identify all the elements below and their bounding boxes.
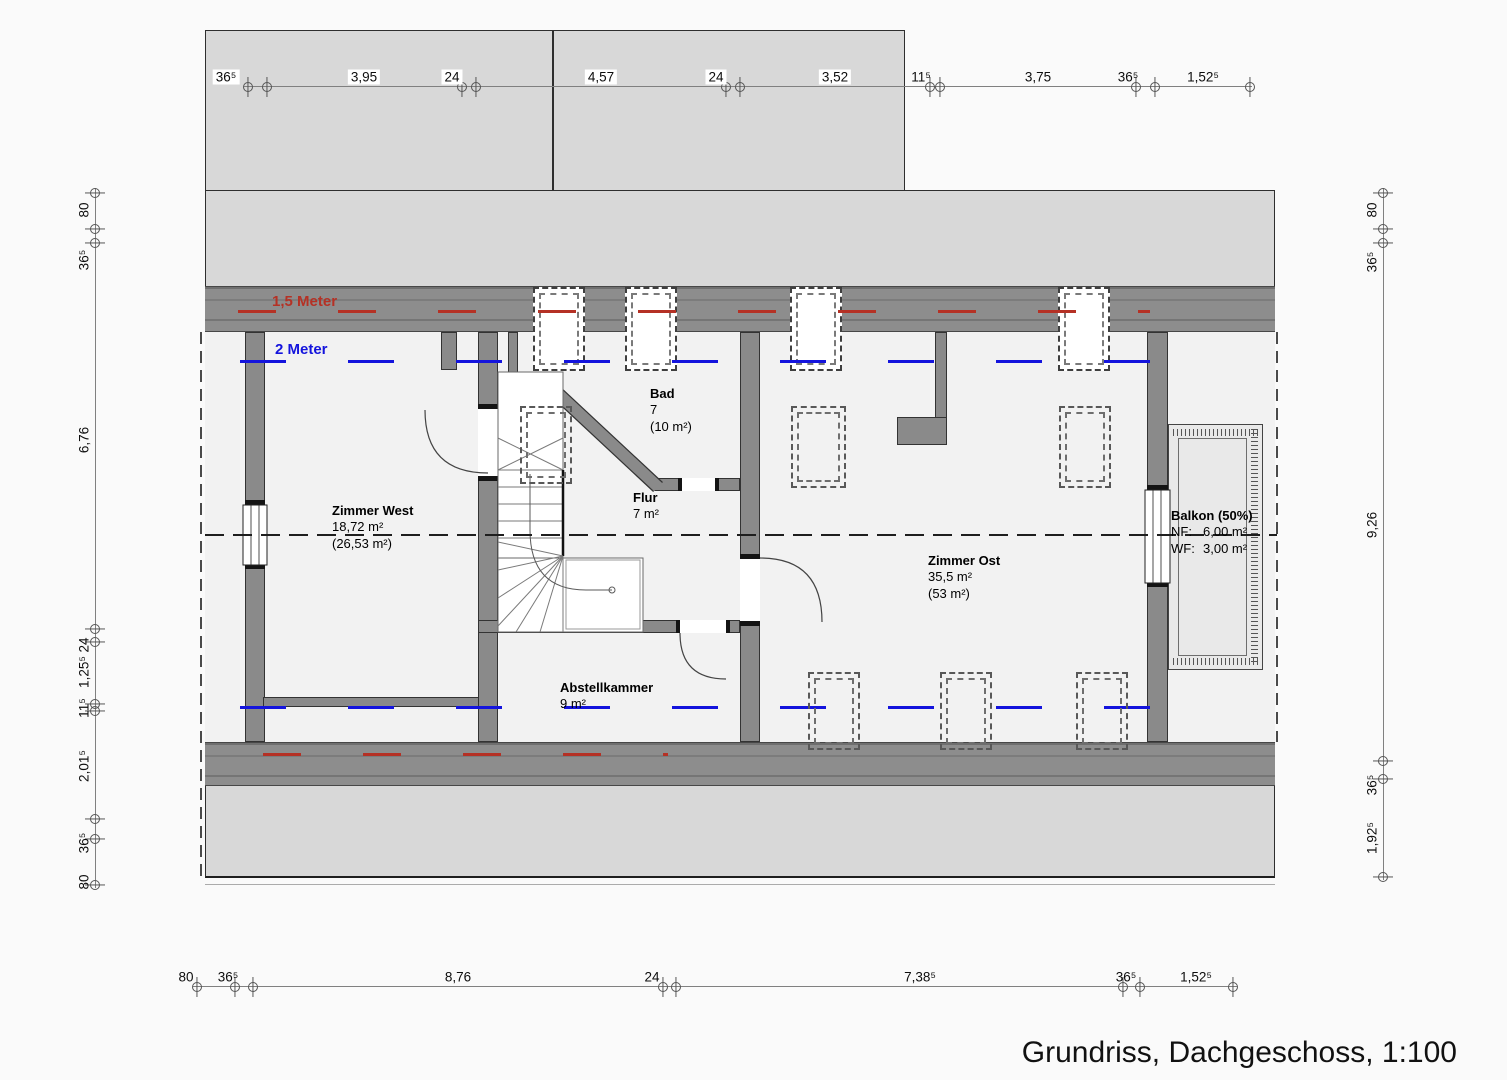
door-cap	[740, 621, 760, 626]
dim-tick	[671, 982, 681, 992]
door-cap	[740, 554, 760, 559]
room-label-abstellkammer: Abstellkammer 9 m²	[560, 680, 653, 713]
window-cap	[1147, 485, 1168, 490]
dim-tick	[90, 624, 100, 634]
eave-dashed-line-west	[200, 332, 202, 878]
dim-label: 36⁵	[77, 830, 92, 857]
nf-value: 6,00 m²	[1203, 524, 1247, 540]
dim-tick	[90, 238, 100, 248]
skylight-inner	[814, 678, 854, 744]
dim-label: 80	[77, 199, 92, 220]
dim-tick	[1150, 82, 1160, 92]
chimney-wall-vertical	[935, 332, 947, 420]
dim-label: 7,38⁵	[901, 970, 939, 985]
dim-line-left	[95, 188, 96, 888]
wall-east-lower	[1147, 583, 1168, 742]
roof-block-west	[205, 30, 553, 191]
room-area-total: (26,53 m²)	[332, 536, 413, 552]
dim-tick	[90, 834, 100, 844]
wf-value: 3,00 m²	[1203, 541, 1247, 557]
dim-line-bottom	[193, 986, 1237, 987]
roof-band-south	[205, 786, 1275, 878]
dormer-window	[625, 287, 677, 371]
dim-label: 36⁵	[1365, 249, 1380, 276]
dormer-window-inner	[631, 293, 671, 365]
drawing-title: Grundriss, Dachgeschoss, 1:100	[1022, 1036, 1457, 1070]
nf-label: NF:	[1171, 524, 1203, 540]
dim-label: 6,76	[77, 424, 92, 456]
dim-label: 11⁵	[77, 695, 92, 721]
room-area-total: (10 m²)	[650, 419, 692, 435]
door-cap	[676, 620, 680, 633]
room-area-total: (53 m²)	[928, 586, 1000, 602]
door-gap-zimmer-ost	[740, 558, 760, 622]
dim-tick	[1378, 224, 1388, 234]
dormer-window-inner	[539, 293, 579, 365]
skylight-inner	[526, 412, 566, 478]
wall-stub-a	[441, 332, 457, 370]
dim-label: 36⁵	[215, 970, 242, 985]
headroom-line-2m-south	[240, 706, 1150, 709]
dim-tick	[90, 224, 100, 234]
headroom-label-2m: 2 Meter	[275, 341, 328, 358]
dim-label: 80	[175, 970, 196, 985]
floor-plan-canvas: 1,5 Meter 2 Meter Zimmer West 18,72 m² (…	[0, 0, 1507, 1080]
window-cap	[245, 564, 265, 569]
headroom-label-1-5m: 1,5 Meter	[272, 293, 337, 310]
wall-bad-south-stub	[717, 478, 740, 491]
balcony-railing-top	[1173, 429, 1258, 436]
wall-stair-west-lower	[478, 477, 498, 742]
room-name: Balkon (50%)	[1171, 508, 1253, 524]
dim-label: 24	[641, 970, 662, 985]
chimney-block	[897, 417, 947, 445]
dim-tick	[90, 814, 100, 824]
room-label-zimmer-west: Zimmer West 18,72 m² (26,53 m²)	[332, 503, 413, 552]
wall-east-upper	[1147, 332, 1168, 490]
dim-label: 9,26	[1365, 509, 1380, 541]
knee-wall-north	[205, 286, 1275, 332]
room-area: 7 m²	[633, 506, 659, 522]
dim-label: 1,25⁵	[77, 653, 92, 691]
room-area: 18,72 m²	[332, 519, 413, 535]
door-cap	[678, 478, 682, 491]
headroom-line-1-5m-north	[238, 310, 1150, 313]
dim-tick	[735, 82, 745, 92]
dim-label: 36⁵	[77, 247, 92, 274]
skylight	[791, 406, 846, 488]
dim-label: 36⁵	[1113, 970, 1140, 985]
skylight	[940, 672, 992, 750]
skylight	[1059, 406, 1111, 488]
door-gap-bad	[682, 478, 717, 491]
room-name: Zimmer Ost	[928, 553, 1000, 569]
dim-tick	[90, 637, 100, 647]
wf-label: WF:	[1171, 541, 1203, 557]
dim-tick	[90, 188, 100, 198]
door-cap	[726, 620, 730, 633]
room-name: Zimmer West	[332, 503, 413, 519]
wall-central-upper	[740, 332, 760, 558]
door-cap	[478, 476, 498, 481]
room-area: 35,5 m²	[928, 569, 1000, 585]
dim-label: 36⁵	[213, 70, 240, 85]
skylight	[1076, 672, 1128, 750]
door-cap	[478, 404, 498, 409]
dim-tick	[1228, 982, 1238, 992]
room-area: 7	[650, 402, 692, 418]
dormer-window	[1058, 287, 1110, 371]
door-cap	[715, 478, 719, 491]
dim-label: 1,92⁵	[1365, 819, 1380, 857]
room-label-zimmer-ost: Zimmer Ost 35,5 m² (53 m²)	[928, 553, 1000, 602]
dim-label: 36⁵	[1365, 772, 1380, 799]
dormer-window	[533, 287, 585, 371]
door-gap-zimmer-west	[478, 408, 498, 477]
skylight-inner	[1065, 412, 1105, 482]
dormer-window	[790, 287, 842, 371]
dim-tick	[1378, 774, 1388, 784]
wall-west-upper	[245, 332, 265, 505]
dim-label: 24	[441, 70, 462, 85]
dormer-window-inner	[1064, 293, 1104, 365]
dim-label: 3,95	[348, 70, 380, 85]
wall-stub-b	[508, 332, 518, 378]
dim-tick	[1378, 872, 1388, 882]
headroom-line-1-5m-south	[263, 753, 668, 756]
dim-line-top	[244, 86, 1252, 87]
balcony-railing-bottom	[1173, 658, 1258, 665]
dim-tick	[262, 82, 272, 92]
dim-tick	[1245, 82, 1255, 92]
roof-block-east	[553, 30, 905, 191]
dim-label: 1,52⁵	[1184, 70, 1222, 85]
dim-label: 8,76	[442, 970, 474, 985]
dim-label: 2,01⁵	[77, 747, 92, 785]
dim-tick	[1378, 188, 1388, 198]
wall-landing-south	[478, 620, 680, 633]
headroom-line-2m-north	[240, 360, 1150, 363]
room-name: Bad	[650, 386, 692, 402]
room-name: Flur	[633, 490, 659, 506]
skylight-inner	[1082, 678, 1122, 744]
roof-edge-shadow-line	[205, 884, 1275, 885]
room-area: 9 m²	[560, 696, 653, 712]
window-cap	[1147, 582, 1168, 587]
dim-label: 24	[705, 70, 726, 85]
dim-label: 36⁵	[1115, 70, 1142, 85]
dim-label: 1,52⁵	[1177, 970, 1215, 985]
dim-tick	[90, 706, 100, 716]
skylight-inner	[797, 412, 840, 482]
dim-tick	[1378, 238, 1388, 248]
dim-tick	[471, 82, 481, 92]
room-label-balkon: Balkon (50%) NF:6,00 m² WF:3,00 m²	[1171, 508, 1253, 557]
dim-tick	[243, 82, 253, 92]
dim-label: 4,57	[585, 70, 617, 85]
dormer-window-inner	[796, 293, 836, 365]
roof-band-north	[205, 190, 1275, 286]
dim-label: 80	[1365, 199, 1380, 220]
wall-stair-west-upper	[478, 332, 498, 408]
eave-dashed-line-east	[1276, 332, 1278, 742]
dim-label: 11⁵	[908, 70, 934, 85]
wall-west-lower	[245, 565, 265, 742]
dim-label: 3,52	[819, 70, 851, 85]
dim-tick	[90, 880, 100, 890]
skylight-inner	[946, 678, 986, 744]
door-gap-abstellkammer	[680, 620, 726, 633]
skylight	[520, 406, 572, 484]
dim-tick	[935, 82, 945, 92]
room-label-bad: Bad 7 (10 m²)	[650, 386, 692, 435]
skylight	[808, 672, 860, 750]
balkon-nf-row: NF:6,00 m²	[1171, 524, 1253, 540]
dim-label: 3,75	[1022, 70, 1054, 85]
dim-label: 80	[77, 871, 92, 892]
dim-tick	[248, 982, 258, 992]
wall-central-lower	[740, 622, 760, 742]
dim-tick	[1378, 756, 1388, 766]
balkon-wf-row: WF:3,00 m²	[1171, 541, 1253, 557]
room-label-flur: Flur 7 m²	[633, 490, 659, 523]
window-cap	[245, 500, 265, 505]
room-name: Abstellkammer	[560, 680, 653, 696]
